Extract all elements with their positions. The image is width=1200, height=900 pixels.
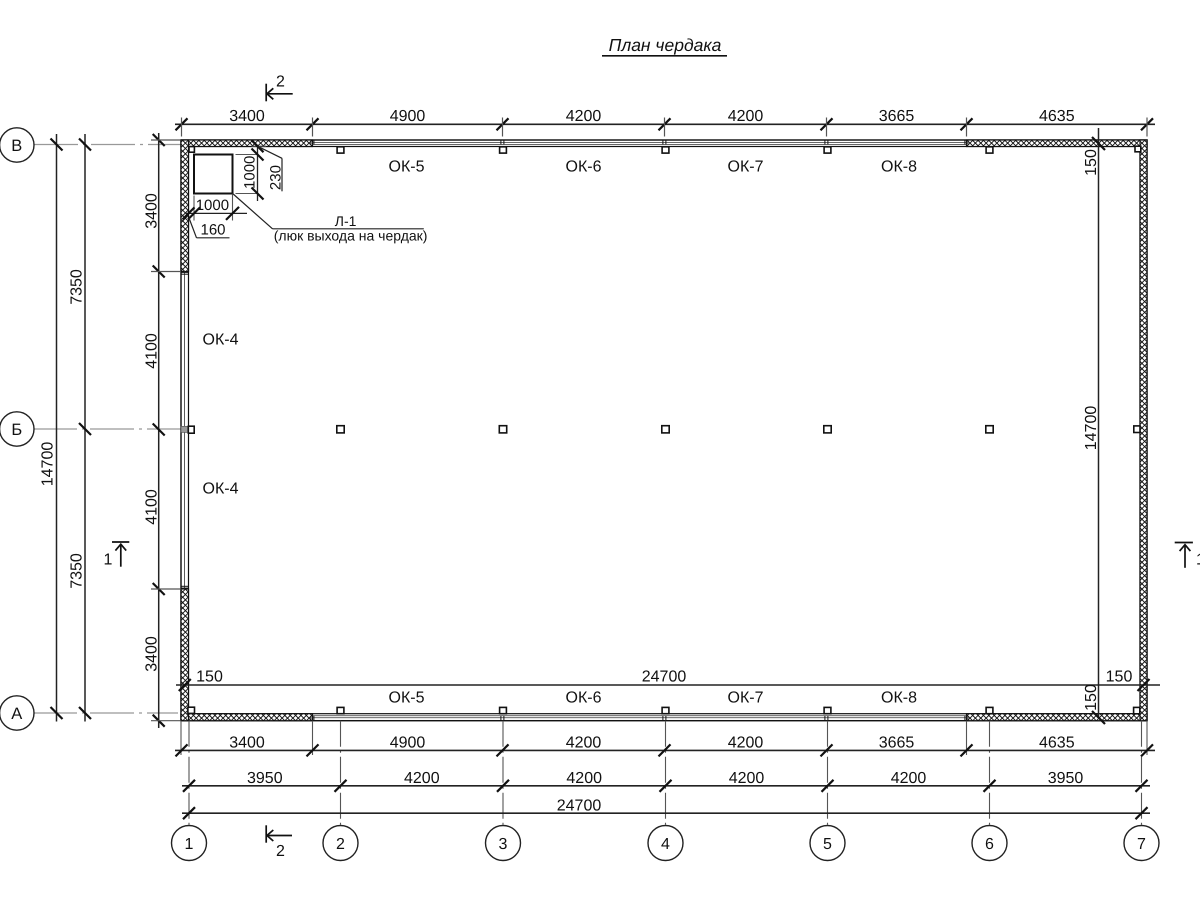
svg-text:4200: 4200: [728, 108, 764, 125]
svg-text:4200: 4200: [566, 770, 602, 787]
svg-text:160: 160: [200, 222, 225, 239]
svg-text:1000: 1000: [196, 197, 229, 214]
svg-text:(люк выхода на чердак): (люк выхода на чердак): [274, 228, 428, 244]
svg-text:6: 6: [985, 836, 994, 853]
svg-text:4900: 4900: [390, 108, 426, 125]
svg-text:4200: 4200: [566, 108, 602, 125]
svg-text:14700: 14700: [39, 442, 56, 487]
svg-text:План чердака: План чердака: [609, 35, 722, 55]
svg-text:ОК-7: ОК-7: [728, 690, 764, 707]
svg-text:3665: 3665: [879, 735, 915, 752]
svg-text:7: 7: [1137, 836, 1146, 853]
svg-text:2: 2: [276, 843, 285, 860]
svg-text:ОК-4: ОК-4: [203, 481, 239, 498]
svg-text:1000: 1000: [242, 156, 259, 189]
svg-text:3400: 3400: [229, 735, 265, 752]
svg-text:В: В: [11, 137, 22, 155]
svg-text:4200: 4200: [404, 770, 440, 787]
svg-text:ОК-8: ОК-8: [881, 159, 917, 176]
svg-text:3400: 3400: [143, 193, 160, 229]
svg-text:ОК-4: ОК-4: [203, 332, 239, 349]
svg-text:ОК-6: ОК-6: [566, 159, 602, 176]
svg-text:4200: 4200: [729, 770, 765, 787]
svg-text:А: А: [11, 705, 22, 723]
svg-text:2: 2: [336, 836, 345, 853]
svg-text:4200: 4200: [566, 735, 602, 752]
svg-text:ОК-7: ОК-7: [728, 159, 764, 176]
svg-text:150: 150: [196, 669, 223, 686]
svg-text:150: 150: [1106, 669, 1133, 686]
svg-text:4900: 4900: [390, 735, 426, 752]
svg-text:ОК-6: ОК-6: [566, 690, 602, 707]
svg-text:7350: 7350: [68, 553, 85, 589]
svg-text:4635: 4635: [1039, 108, 1075, 125]
svg-text:150: 150: [1083, 684, 1100, 711]
svg-text:2: 2: [276, 74, 285, 91]
svg-text:4200: 4200: [891, 770, 927, 787]
svg-text:3950: 3950: [1048, 770, 1084, 787]
svg-text:4: 4: [661, 836, 670, 853]
svg-text:4100: 4100: [143, 333, 160, 369]
svg-text:3400: 3400: [229, 108, 265, 125]
svg-text:ОК-5: ОК-5: [389, 159, 425, 176]
svg-text:5: 5: [823, 836, 832, 853]
svg-text:4100: 4100: [143, 489, 160, 525]
svg-text:3: 3: [499, 836, 508, 853]
svg-text:1: 1: [185, 836, 194, 853]
svg-text:24700: 24700: [557, 797, 602, 814]
svg-text:14700: 14700: [1083, 406, 1100, 451]
svg-text:1: 1: [1196, 552, 1200, 569]
svg-text:24700: 24700: [642, 668, 687, 685]
svg-text:ОК-8: ОК-8: [881, 690, 917, 707]
svg-text:3665: 3665: [879, 108, 915, 125]
svg-text:ОК-5: ОК-5: [389, 690, 425, 707]
svg-text:1: 1: [104, 551, 113, 568]
svg-text:3950: 3950: [247, 770, 283, 787]
svg-text:4635: 4635: [1039, 735, 1075, 752]
svg-text:3400: 3400: [143, 636, 160, 672]
svg-text:230: 230: [267, 165, 284, 190]
svg-text:Б: Б: [11, 421, 22, 439]
svg-text:150: 150: [1083, 149, 1100, 176]
svg-text:7350: 7350: [68, 269, 85, 305]
svg-text:4200: 4200: [728, 735, 764, 752]
